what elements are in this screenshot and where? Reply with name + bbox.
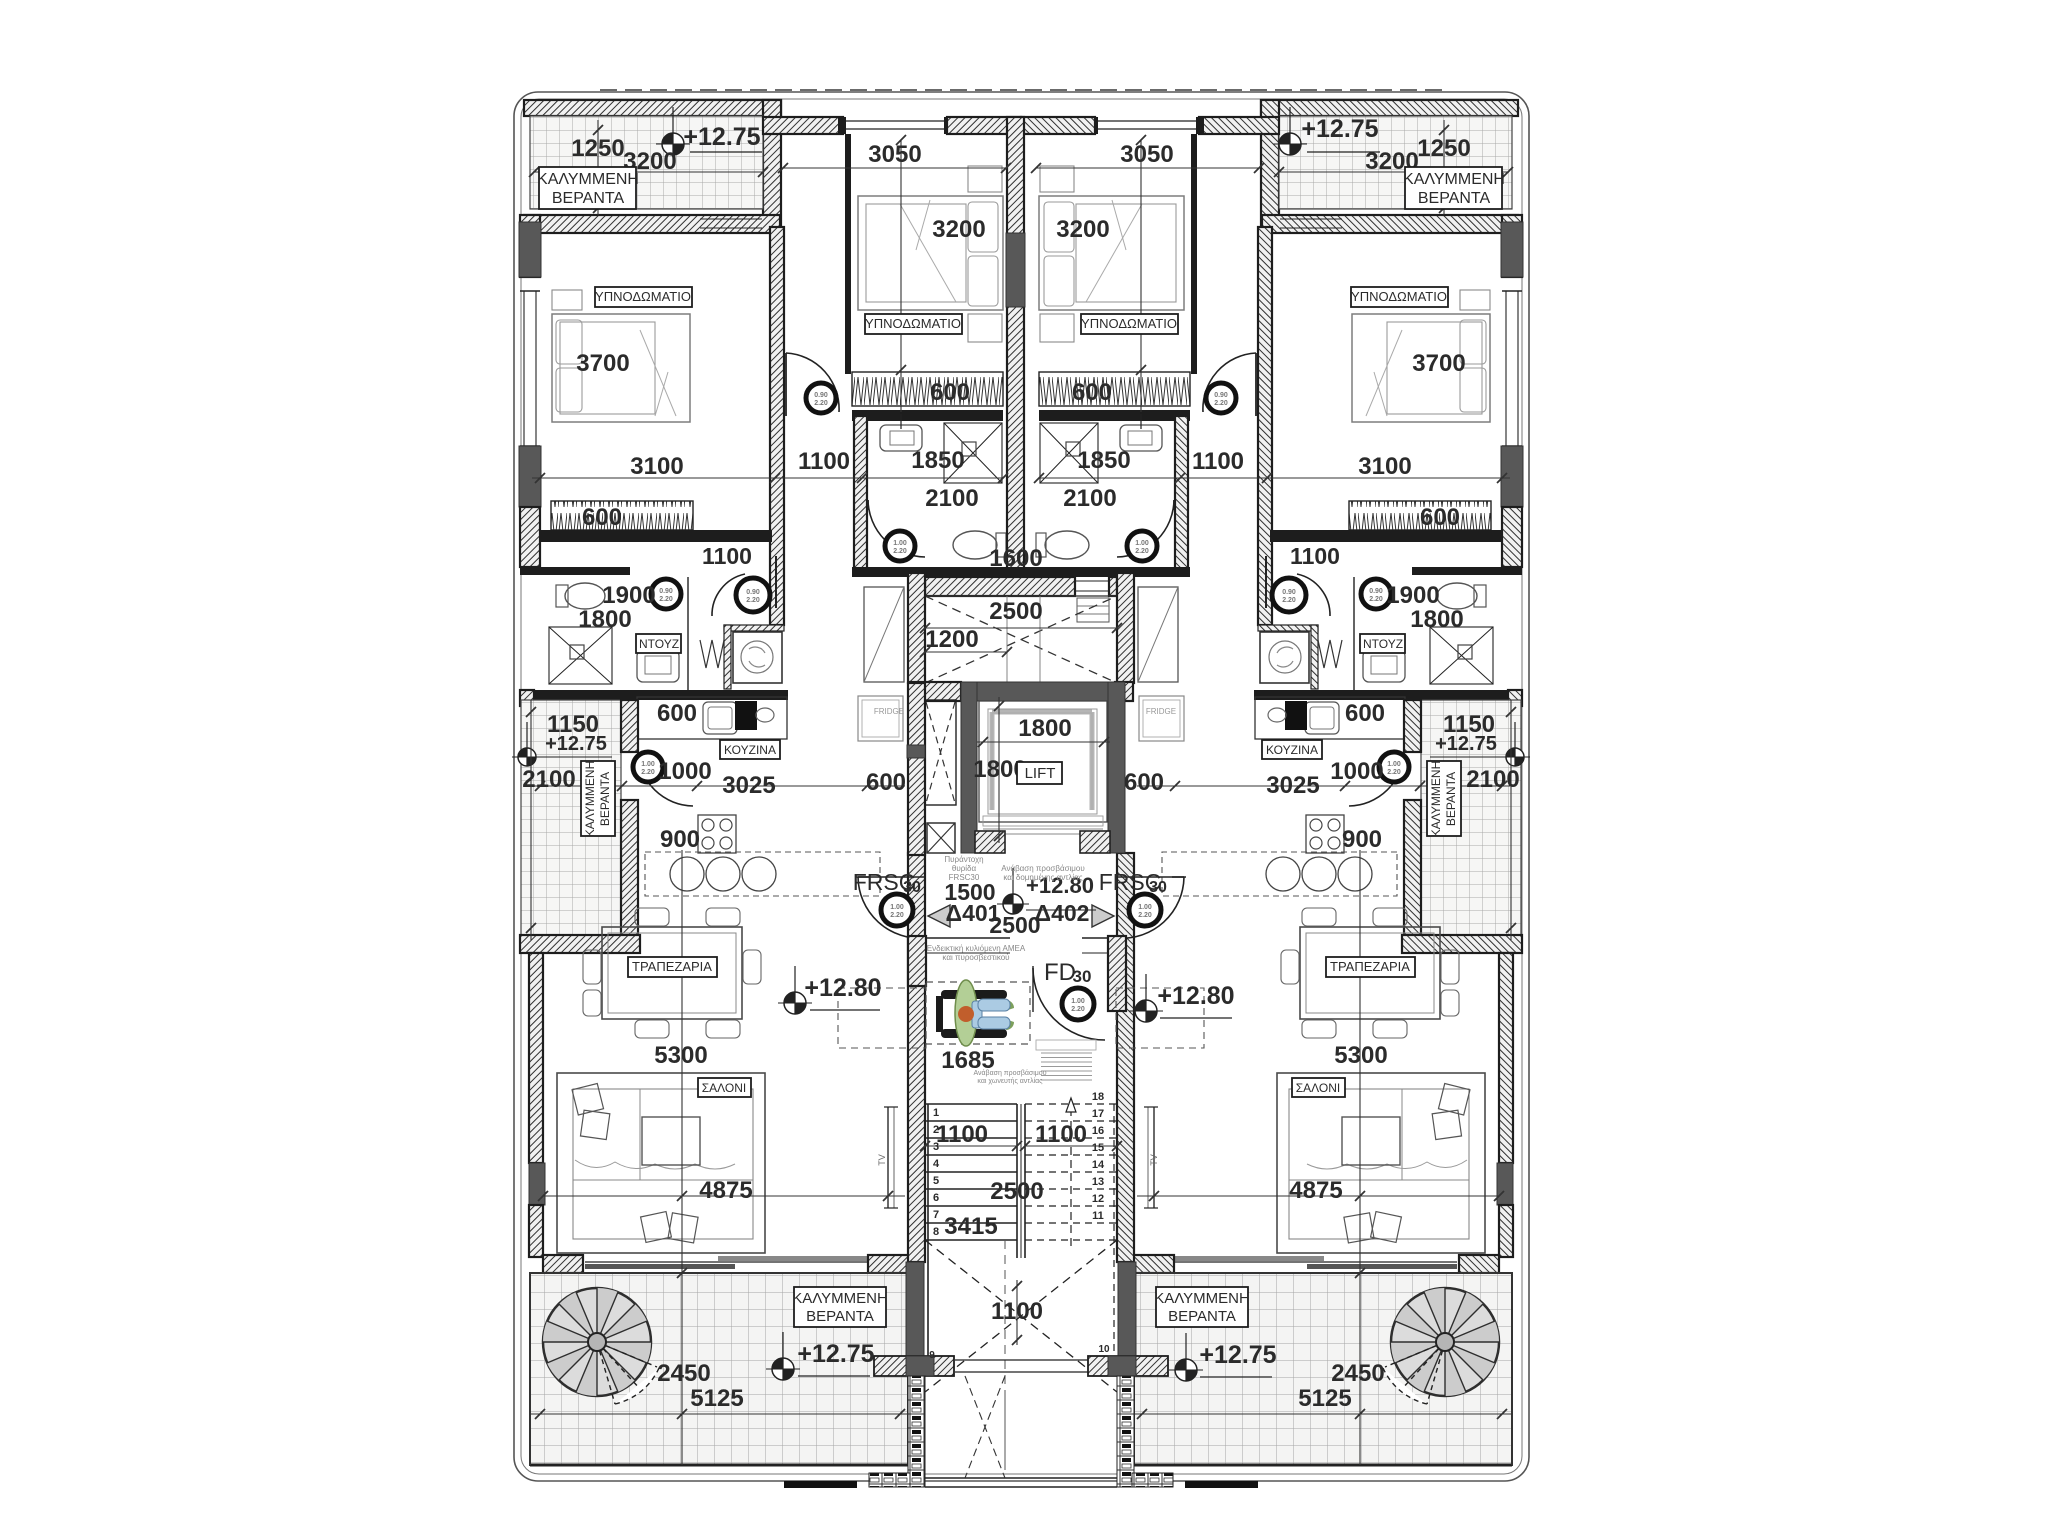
- svg-text:ΚΑΛΥΜΜΕΝΗ: ΚΑΛΥΜΜΕΝΗ: [792, 1290, 888, 1307]
- svg-text:2.20: 2.20: [1369, 596, 1383, 603]
- svg-text:ΚΟΥΖΙΝΑ: ΚΟΥΖΙΝΑ: [724, 743, 776, 757]
- svg-text:1800: 1800: [1018, 715, 1071, 742]
- svg-text:+12.80: +12.80: [1157, 982, 1234, 1010]
- svg-text:1.00: 1.00: [893, 540, 907, 547]
- svg-text:και δομημένης αντλίας: και δομημένης αντλίας: [1003, 873, 1082, 882]
- svg-text:2: 2: [933, 1124, 939, 1136]
- svg-text:2.20: 2.20: [1071, 1006, 1085, 1013]
- svg-text:1900: 1900: [602, 582, 655, 609]
- svg-text:FRSC30: FRSC30: [949, 873, 980, 882]
- svg-text:30: 30: [1073, 967, 1092, 986]
- svg-text:ΥΠΝΟΔΩΜΑΤΙΟ: ΥΠΝΟΔΩΜΑΤΙΟ: [865, 316, 961, 331]
- svg-text:14: 14: [1092, 1159, 1105, 1171]
- svg-text:1850: 1850: [911, 447, 964, 474]
- svg-text:2100: 2100: [522, 766, 575, 793]
- svg-text:600: 600: [1072, 379, 1112, 406]
- svg-text:2.20: 2.20: [641, 769, 655, 776]
- svg-text:30: 30: [1149, 879, 1167, 896]
- svg-text:600: 600: [866, 769, 906, 796]
- svg-text:ΤΡΑΠΕΖΑΡΙΑ: ΤΡΑΠΕΖΑΡΙΑ: [632, 959, 712, 974]
- svg-text:5300: 5300: [654, 1042, 707, 1069]
- svg-text:0.90: 0.90: [1369, 588, 1383, 595]
- svg-text:600: 600: [657, 700, 697, 727]
- svg-text:FD: FD: [1044, 959, 1076, 986]
- svg-text:ΥΠΝΟΔΩΜΑΤΙΟ: ΥΠΝΟΔΩΜΑΤΙΟ: [1081, 316, 1177, 331]
- svg-text:ΒΕΡΑΝΤΑ: ΒΕΡΑΝΤΑ: [598, 772, 612, 826]
- svg-text:ΝΤΟΥΖ: ΝΤΟΥΖ: [639, 637, 679, 651]
- svg-text:5125: 5125: [690, 1385, 743, 1412]
- svg-text:600: 600: [1124, 769, 1164, 796]
- svg-text:ΒΕΡΑΝΤΑ: ΒΕΡΑΝΤΑ: [1418, 190, 1491, 207]
- svg-text:FRIDGE: FRIDGE: [874, 707, 904, 716]
- svg-text:2100: 2100: [1466, 766, 1519, 793]
- svg-text:ΤΡΑΠΕΖΑΡΙΑ: ΤΡΑΠΕΖΑΡΙΑ: [1330, 959, 1410, 974]
- svg-text:5125: 5125: [1298, 1385, 1351, 1412]
- svg-text:2500: 2500: [990, 1178, 1043, 1205]
- svg-text:+12.75: +12.75: [683, 123, 760, 151]
- svg-text:2500: 2500: [989, 912, 1040, 938]
- svg-text:1.00: 1.00: [890, 904, 904, 911]
- svg-text:Ανάβαση προσβάσιμου: Ανάβαση προσβάσιμου: [973, 1069, 1046, 1077]
- svg-text:ΣΑΛΟΝΙ: ΣΑΛΟΝΙ: [1296, 1081, 1341, 1095]
- svg-text:0.90: 0.90: [746, 589, 760, 596]
- svg-text:4: 4: [933, 1158, 940, 1170]
- svg-text:TV: TV: [877, 1154, 887, 1166]
- svg-text:ΝΤΟΥΖ: ΝΤΟΥΖ: [1363, 637, 1403, 651]
- svg-text:2.20: 2.20: [1282, 597, 1296, 604]
- svg-text:3050: 3050: [868, 141, 921, 168]
- svg-text:3700: 3700: [576, 350, 629, 377]
- svg-text:900: 900: [660, 826, 700, 853]
- svg-text:2100: 2100: [1063, 485, 1116, 512]
- svg-text:10: 10: [1098, 1344, 1110, 1355]
- svg-text:LIFT: LIFT: [1025, 765, 1056, 782]
- svg-text:600: 600: [930, 379, 970, 406]
- svg-text:9: 9: [929, 1350, 935, 1361]
- svg-text:0.90: 0.90: [1214, 392, 1228, 399]
- svg-text:12: 12: [1092, 1193, 1104, 1205]
- svg-text:+12.75: +12.75: [1301, 115, 1378, 143]
- svg-text:13: 13: [1092, 1176, 1104, 1188]
- svg-text:και χωνευτής αντλίας: και χωνευτής αντλίας: [977, 1077, 1043, 1085]
- svg-text:FRIDGE: FRIDGE: [1146, 707, 1176, 716]
- svg-text:600: 600: [1345, 700, 1385, 727]
- svg-text:2.20: 2.20: [659, 596, 673, 603]
- svg-text:1.00: 1.00: [1138, 904, 1152, 911]
- svg-text:1800: 1800: [578, 606, 631, 633]
- svg-text:0.90: 0.90: [1282, 589, 1296, 596]
- svg-text:Πυράντοχη: Πυράντοχη: [944, 855, 983, 864]
- svg-text:1: 1: [933, 1107, 939, 1119]
- svg-text:1.00: 1.00: [1071, 998, 1085, 1005]
- svg-text:2.20: 2.20: [890, 912, 904, 919]
- svg-text:2.20: 2.20: [746, 597, 760, 604]
- svg-text:1250: 1250: [1417, 135, 1470, 162]
- svg-text:1000: 1000: [658, 758, 711, 785]
- svg-text:ΚΑΛΥΜΜΕΝΗ: ΚΑΛΥΜΜΕΝΗ: [537, 171, 639, 188]
- svg-text:6: 6: [933, 1192, 939, 1204]
- svg-text:600: 600: [582, 504, 622, 531]
- svg-text:2.20: 2.20: [1138, 912, 1152, 919]
- svg-text:1900: 1900: [1386, 582, 1439, 609]
- svg-text:2500: 2500: [989, 598, 1042, 625]
- svg-text:1100: 1100: [1192, 448, 1244, 475]
- svg-text:7: 7: [933, 1209, 939, 1221]
- svg-text:1600: 1600: [989, 545, 1042, 572]
- svg-text:3415: 3415: [944, 1213, 997, 1240]
- svg-text:1.00: 1.00: [1135, 540, 1149, 547]
- svg-text:ΚΑΛΥΜΜΕΝΗ: ΚΑΛΥΜΜΕΝΗ: [1429, 761, 1443, 837]
- svg-text:4875: 4875: [1289, 1177, 1342, 1204]
- svg-text:3050: 3050: [1120, 141, 1173, 168]
- svg-text:1850: 1850: [1077, 447, 1130, 474]
- svg-text:1150: 1150: [547, 711, 599, 738]
- svg-text:Ανάβαση προσβάσιμου: Ανάβαση προσβάσιμου: [1001, 864, 1084, 873]
- svg-text:11: 11: [1092, 1210, 1104, 1222]
- svg-text:ΒΕΡΑΝΤΑ: ΒΕΡΑΝΤΑ: [806, 1308, 874, 1325]
- svg-text:3: 3: [933, 1141, 939, 1153]
- svg-text:ΚΟΥΖΙΝΑ: ΚΟΥΖΙΝΑ: [1266, 743, 1318, 757]
- svg-text:0.90: 0.90: [659, 588, 673, 595]
- svg-text:4875: 4875: [699, 1177, 752, 1204]
- svg-text:ΚΑΛΥΜΜΕΝΗ: ΚΑΛΥΜΜΕΝΗ: [1154, 1290, 1250, 1307]
- svg-text:30: 30: [903, 879, 921, 896]
- svg-text:ΥΠΝΟΔΩΜΑΤΙΟ: ΥΠΝΟΔΩΜΑΤΙΟ: [1351, 289, 1447, 304]
- svg-text:3100: 3100: [630, 453, 683, 480]
- svg-text:1.00: 1.00: [1387, 761, 1401, 768]
- svg-text:2.20: 2.20: [1214, 400, 1228, 407]
- svg-text:ΣΑΛΟΝΙ: ΣΑΛΟΝΙ: [702, 1081, 747, 1095]
- svg-text:900: 900: [1342, 826, 1382, 853]
- svg-text:3200: 3200: [932, 216, 985, 243]
- svg-text:2.20: 2.20: [1135, 548, 1149, 555]
- svg-text:1250: 1250: [571, 135, 624, 162]
- svg-text:2.20: 2.20: [893, 548, 907, 555]
- svg-text:15: 15: [1092, 1142, 1104, 1154]
- svg-text:5: 5: [933, 1175, 939, 1187]
- svg-text:1100: 1100: [798, 448, 850, 475]
- svg-text:1000: 1000: [1330, 758, 1383, 785]
- svg-text:600: 600: [1420, 504, 1460, 531]
- svg-text:3200: 3200: [1056, 216, 1109, 243]
- svg-text:και πυροσβεστικού: και πυροσβεστικού: [942, 953, 1009, 962]
- svg-text:3100: 3100: [1358, 453, 1411, 480]
- svg-text:1100: 1100: [936, 1121, 988, 1148]
- svg-text:Ενδεικτική κυλιόμενη ΑΜΕΑ: Ενδεικτική κυλιόμενη ΑΜΕΑ: [927, 944, 1026, 953]
- svg-text:1100: 1100: [702, 543, 752, 569]
- svg-text:ΒΕΡΑΝΤΑ: ΒΕΡΑΝΤΑ: [1444, 772, 1458, 826]
- svg-text:2450: 2450: [1331, 1360, 1384, 1387]
- svg-text:1100: 1100: [1035, 1121, 1087, 1148]
- svg-text:ΒΕΡΑΝΤΑ: ΒΕΡΑΝΤΑ: [1168, 1308, 1236, 1325]
- svg-text:5300: 5300: [1334, 1042, 1387, 1069]
- svg-text:1100: 1100: [991, 1298, 1043, 1325]
- svg-text:1100: 1100: [1290, 543, 1340, 569]
- svg-text:16: 16: [1092, 1125, 1104, 1137]
- svg-text:+12.75: +12.75: [1199, 1341, 1276, 1369]
- svg-text:0.90: 0.90: [814, 392, 828, 399]
- svg-text:3025: 3025: [722, 772, 775, 799]
- svg-text:2100: 2100: [925, 485, 978, 512]
- svg-text:ΥΠΝΟΔΩΜΑΤΙΟ: ΥΠΝΟΔΩΜΑΤΙΟ: [595, 289, 691, 304]
- svg-text:2.20: 2.20: [1387, 769, 1401, 776]
- svg-text:ΒΕΡΑΝΤΑ: ΒΕΡΑΝΤΑ: [552, 190, 625, 207]
- svg-text:1200: 1200: [925, 626, 978, 653]
- svg-text:17: 17: [1092, 1108, 1104, 1120]
- svg-text:θυρίδα: θυρίδα: [952, 864, 977, 873]
- svg-text:ΚΑΛΥΜΜΕΝΗ: ΚΑΛΥΜΜΕΝΗ: [1403, 171, 1505, 188]
- svg-text:ΚΑΛΥΜΜΕΝΗ: ΚΑΛΥΜΜΕΝΗ: [583, 761, 597, 837]
- svg-text:1800: 1800: [1410, 606, 1463, 633]
- svg-text:3700: 3700: [1412, 350, 1465, 377]
- svg-text:1150: 1150: [1443, 711, 1495, 738]
- svg-text:+12.75: +12.75: [797, 1340, 874, 1368]
- svg-text:TV: TV: [1149, 1154, 1159, 1166]
- svg-text:1.00: 1.00: [641, 761, 655, 768]
- svg-text:Δ402: Δ402: [1035, 900, 1090, 926]
- svg-text:3025: 3025: [1266, 772, 1319, 799]
- svg-text:+12.80: +12.80: [804, 974, 881, 1002]
- svg-text:2450: 2450: [657, 1360, 710, 1387]
- svg-text:2.20: 2.20: [814, 400, 828, 407]
- svg-text:8: 8: [933, 1226, 939, 1238]
- svg-text:18: 18: [1092, 1091, 1104, 1103]
